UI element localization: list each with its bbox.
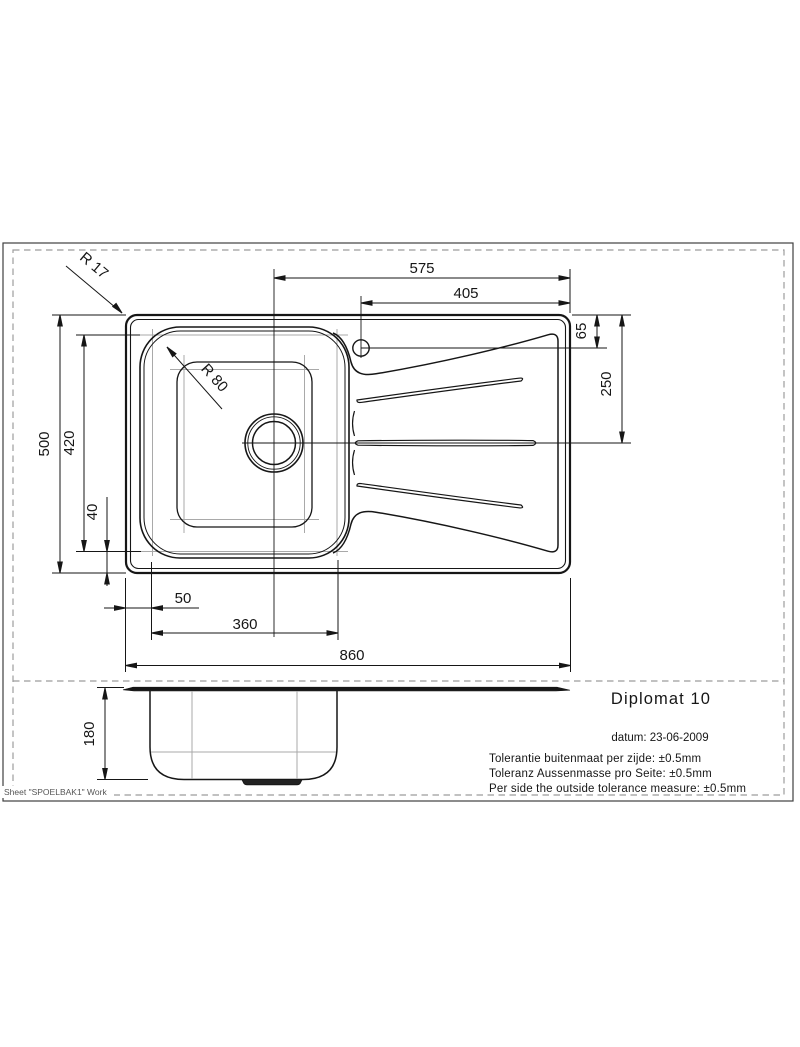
dim-50-label: 50 xyxy=(175,590,192,607)
dim-250-label: 250 xyxy=(598,371,615,396)
side-view-bowl-profile xyxy=(150,691,337,780)
drainboard-ridge-cap-upper xyxy=(353,411,355,436)
dim-360-label: 360 xyxy=(232,616,257,633)
radius-r80-label: R 80 xyxy=(197,361,231,396)
dimension-labels: 575 405 65 250 500 420 40 50 360 860 180… xyxy=(36,249,615,747)
radius-r17-label: R 17 xyxy=(76,249,111,282)
dim-860-label: 860 xyxy=(339,647,364,664)
construction-lines xyxy=(131,329,348,556)
side-view-top-plate xyxy=(123,687,570,691)
technical-drawing: Sheet "SPOELBAK1" Work xyxy=(0,0,800,1047)
drainboard-groove-upper xyxy=(357,378,523,402)
dimension-annotations xyxy=(52,266,631,672)
product-name: Diplomat 10 xyxy=(611,690,711,708)
tolerance-line-de: Toleranz Aussenmasse pro Seite: ±0.5mm xyxy=(489,768,712,780)
sheet-outer-border xyxy=(3,243,793,801)
sheet-frame: Sheet "SPOELBAK1" Work xyxy=(2,243,793,801)
side-view-construction-lines xyxy=(151,691,336,779)
dim-405-label: 405 xyxy=(453,285,478,302)
dim-180-lines xyxy=(97,688,148,780)
dim-40-label: 40 xyxy=(84,504,101,521)
title-block: Diplomat 10 datum: 23-06-2009 Tolerantie… xyxy=(489,690,746,795)
sheet-dashed-border xyxy=(13,250,784,795)
drawing-sheet: Sheet "SPOELBAK1" Work xyxy=(0,0,800,1047)
dim-65-label: 65 xyxy=(573,323,590,340)
sheet-work-label: Sheet "SPOELBAK1" Work xyxy=(4,787,107,797)
dim-575-label: 575 xyxy=(409,260,434,277)
tolerance-line-nl: Tolerantie buitenmaat per zijde: ±0.5mm xyxy=(489,753,701,765)
dim-180-label: 180 xyxy=(81,721,98,746)
date-label: datum: 23-06-2009 xyxy=(611,732,708,744)
side-view-drain-fitting xyxy=(242,780,302,785)
dim-500-label: 500 xyxy=(36,431,53,456)
drainboard-groove-lower xyxy=(357,484,523,508)
dim-420-label: 420 xyxy=(61,430,78,455)
sink-top-view xyxy=(126,269,631,637)
drainboard-ridge-cap-lower xyxy=(353,450,355,475)
tolerance-line-en: Per side the outside tolerance measure: … xyxy=(489,783,746,795)
